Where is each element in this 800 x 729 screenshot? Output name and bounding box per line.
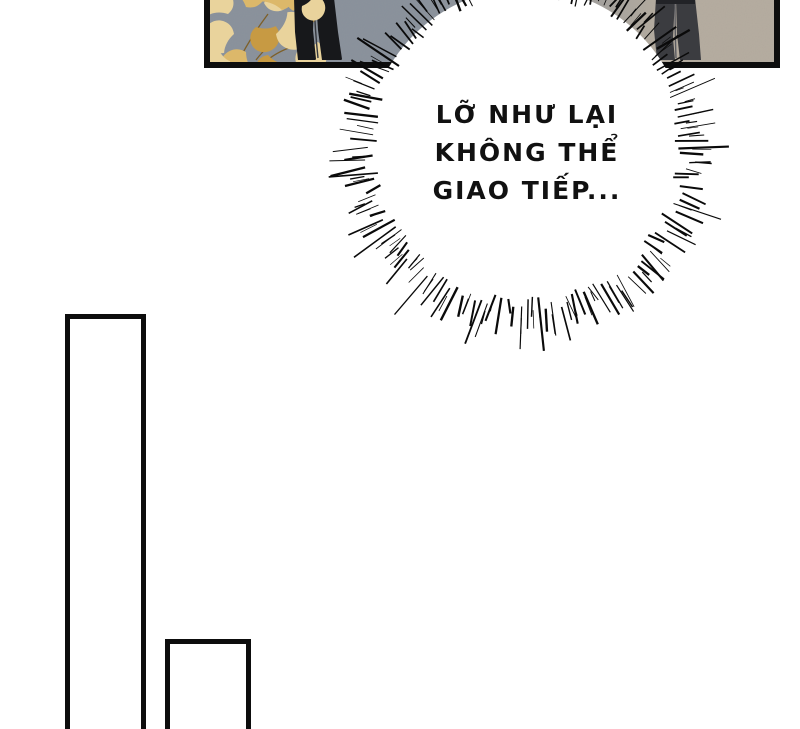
speech-line-2: KHÔNG THỂ [377,134,677,172]
comic-page: LỠ NHƯ LẠI KHÔNG THỂ GIAO TIẾP... [0,0,800,729]
speech-text: LỠ NHƯ LẠI KHÔNG THỂ GIAO TIẾP... [377,96,677,210]
empty-frame-short [165,639,251,729]
top-comic-panel [204,0,780,68]
panel-artwork [210,0,774,62]
speech-line-1: LỠ NHƯ LẠI [377,96,677,134]
empty-frame-tall [65,314,146,729]
speech-line-3: GIAO TIẾP... [377,172,677,210]
